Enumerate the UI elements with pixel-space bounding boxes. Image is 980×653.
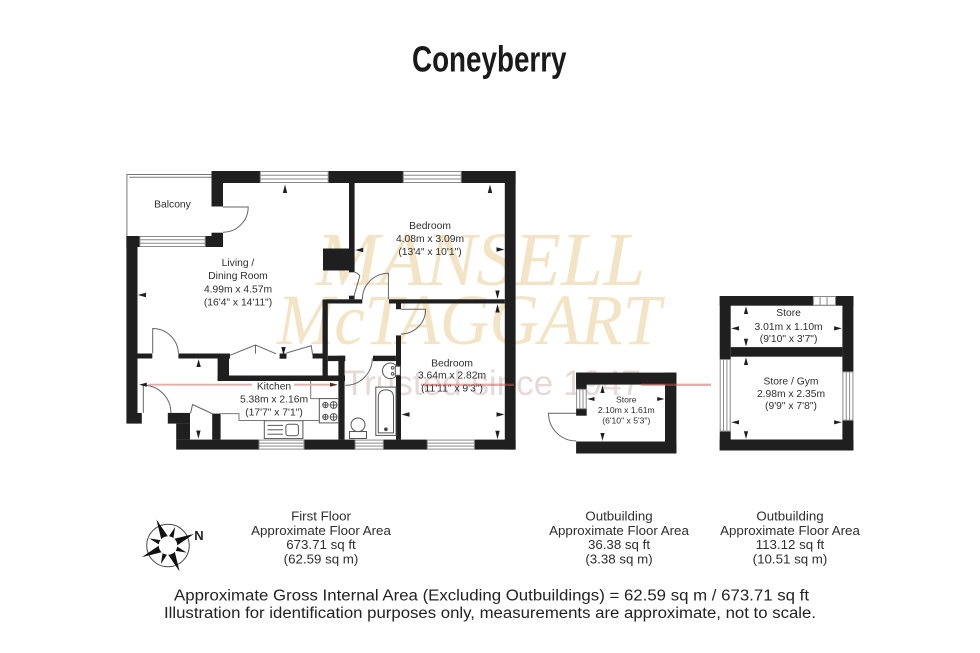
svg-text:(10.51 sq m): (10.51 sq m) xyxy=(753,551,828,566)
svg-text:Outbuilding: Outbuilding xyxy=(585,509,652,524)
svg-text:673.71 sq ft: 673.71 sq ft xyxy=(286,537,356,552)
svg-text:Approximate Floor Area: Approximate Floor Area xyxy=(720,523,860,538)
svg-text:Bedroom: Bedroom xyxy=(409,221,451,232)
svg-text:Outbuilding: Outbuilding xyxy=(756,509,823,524)
svg-text:(62.59 sq m): (62.59 sq m) xyxy=(284,551,359,566)
svg-text:5.38m x 2.16m: 5.38m x 2.16m xyxy=(240,395,308,406)
svg-text:(9'9" x 7'8"): (9'9" x 7'8") xyxy=(765,401,817,412)
svg-text:(6'10" x 5'3"): (6'10" x 5'3") xyxy=(602,416,650,426)
svg-text:113.12 sq ft: 113.12 sq ft xyxy=(756,537,825,552)
svg-text:McTAGGART: McTAGGART xyxy=(276,280,666,360)
svg-text:(9'10" x 3'7"): (9'10" x 3'7") xyxy=(760,334,818,345)
svg-text:Store: Store xyxy=(776,308,801,319)
svg-text:36.38 sq ft: 36.38 sq ft xyxy=(588,537,650,552)
svg-text:Coneyberry: Coneyberry xyxy=(412,39,567,80)
svg-text:4.08m x 3.09m: 4.08m x 3.09m xyxy=(396,234,464,245)
svg-text:Living /: Living / xyxy=(222,258,255,269)
svg-text:3.64m x 2.82m: 3.64m x 2.82m xyxy=(418,371,486,382)
svg-text:Illustration for identificatio: Illustration for identification purposes… xyxy=(164,605,816,622)
svg-text:(16'4" x 14'11"): (16'4" x 14'11") xyxy=(204,298,272,309)
svg-text:First Floor: First Floor xyxy=(291,509,351,524)
svg-text:(3.38 sq m): (3.38 sq m) xyxy=(585,551,652,566)
svg-text:Store / Gym: Store / Gym xyxy=(764,376,819,387)
svg-text:Bedroom: Bedroom xyxy=(431,359,473,370)
svg-text:Approximate Gross Internal Are: Approximate Gross Internal Area (Excludi… xyxy=(174,588,810,605)
svg-text:N: N xyxy=(194,528,203,543)
svg-text:Approximate Floor Area: Approximate Floor Area xyxy=(549,523,689,538)
svg-text:Kitchen: Kitchen xyxy=(257,382,292,393)
svg-text:Balcony: Balcony xyxy=(154,200,191,211)
svg-text:Store: Store xyxy=(616,395,637,405)
svg-text:(17'7" x 7'1"): (17'7" x 7'1") xyxy=(245,408,303,419)
svg-text:(13'4" x 10'1"): (13'4" x 10'1") xyxy=(398,247,461,258)
svg-text:3.01m x 1.10m: 3.01m x 1.10m xyxy=(755,322,823,333)
svg-text:Dining Room: Dining Room xyxy=(208,271,268,282)
svg-text:Approximate Floor Area: Approximate Floor Area xyxy=(251,523,391,538)
svg-text:4.99m x 4.57m: 4.99m x 4.57m xyxy=(204,284,272,295)
svg-text:2.10m x 1.61m: 2.10m x 1.61m xyxy=(598,405,655,415)
svg-text:2.98m x 2.35m: 2.98m x 2.35m xyxy=(757,389,825,400)
